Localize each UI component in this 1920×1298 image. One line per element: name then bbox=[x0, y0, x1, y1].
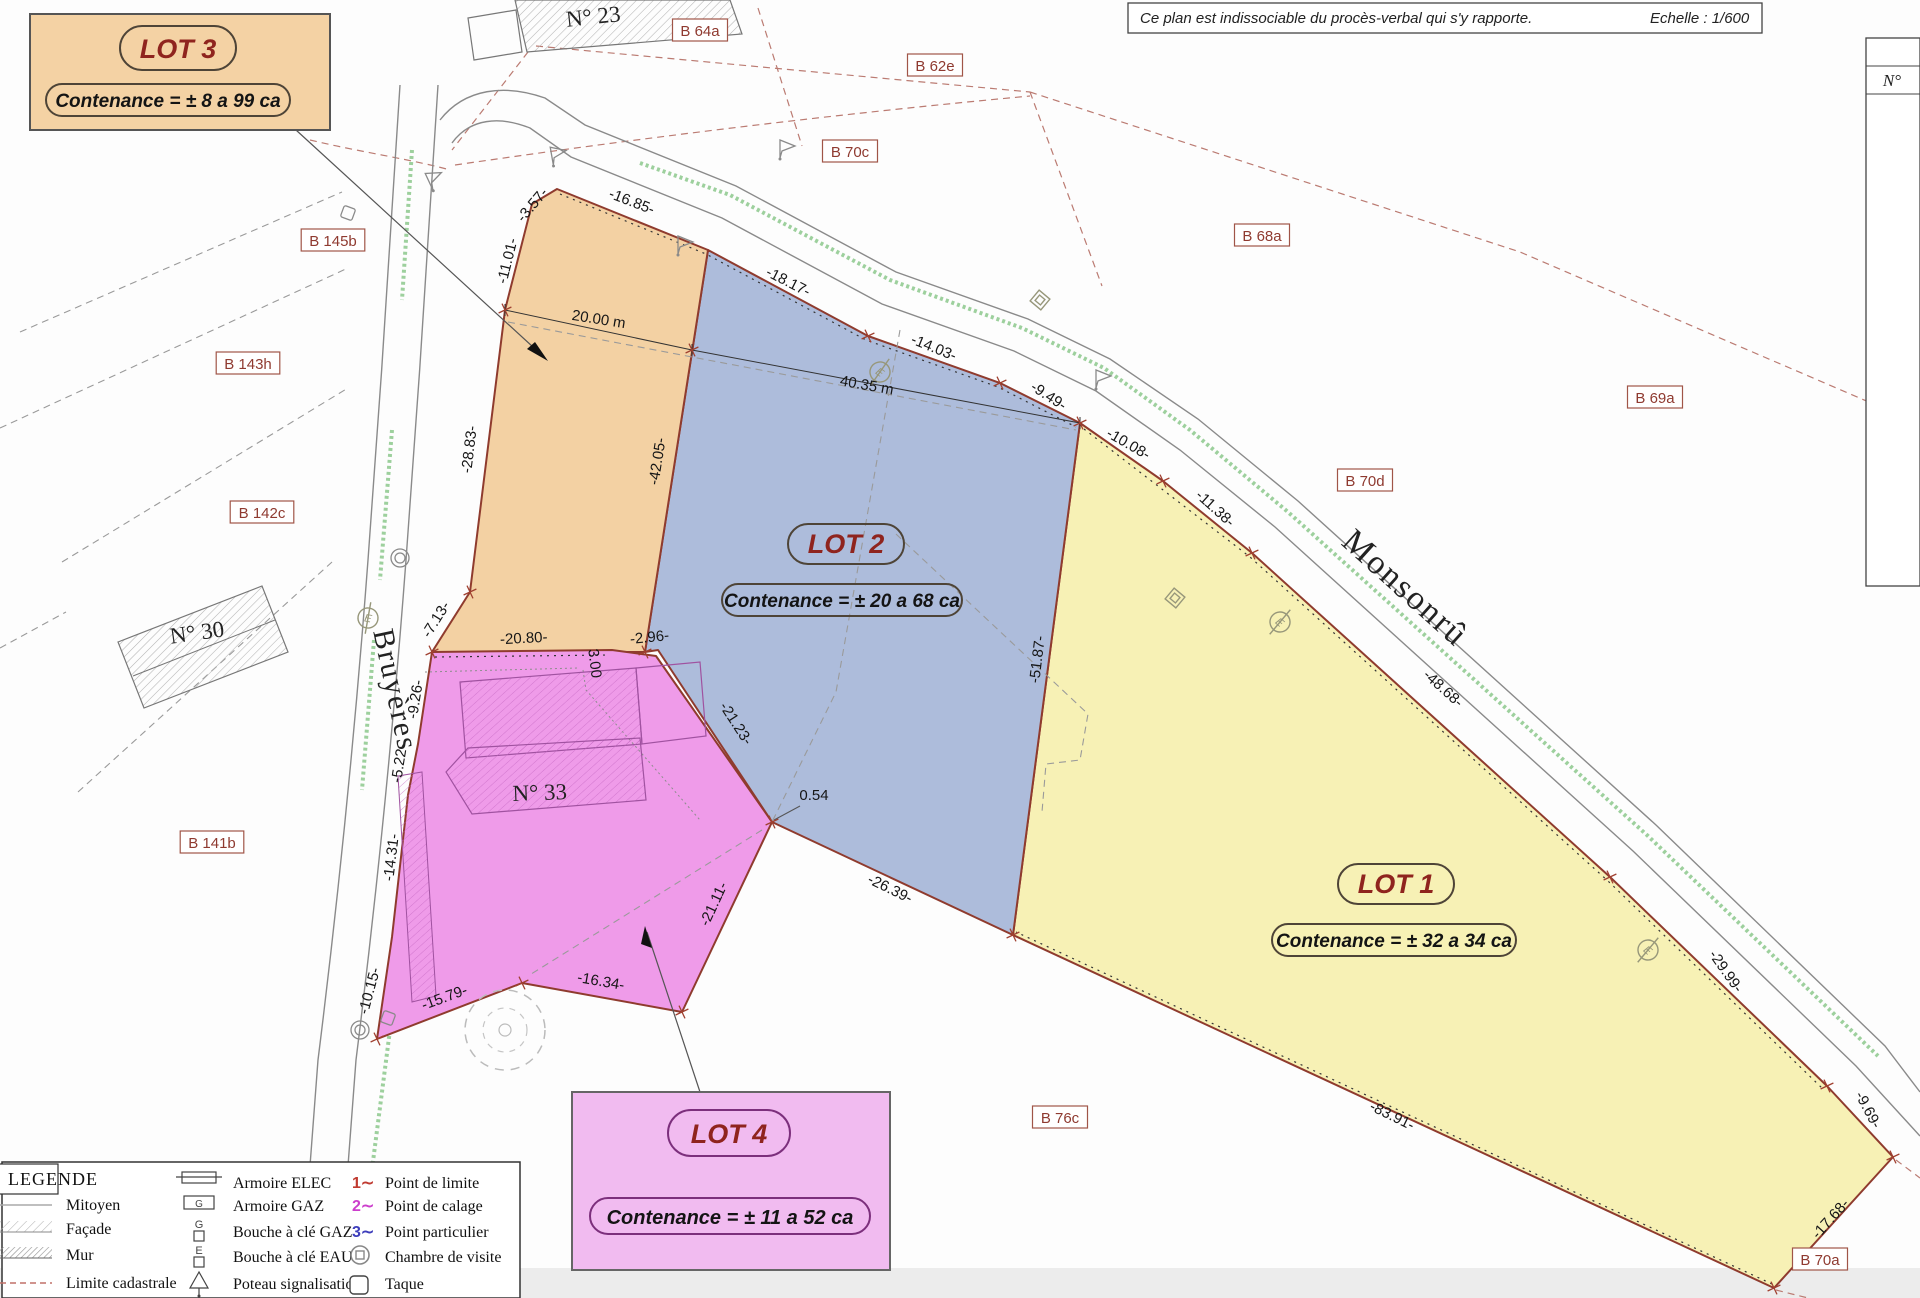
svg-text:B 64a: B 64a bbox=[680, 23, 720, 40]
lot4-title: LOT 4 bbox=[691, 1119, 768, 1149]
parcel-label: B 70a bbox=[1793, 1248, 1848, 1270]
legend: LEGENDE Mitoyen Façade Mur Limite cadast… bbox=[0, 1162, 520, 1298]
parcel-label: B 64a bbox=[673, 19, 728, 41]
parcel-label: B 68a bbox=[1235, 224, 1290, 246]
table-header-n: N° bbox=[1882, 71, 1901, 90]
legend-mur: Mur bbox=[66, 1247, 94, 1264]
parcel-label: B 69a bbox=[1628, 386, 1683, 408]
parcel-label: B 70c bbox=[823, 140, 878, 162]
legend-point-particulier: Point particulier bbox=[385, 1224, 489, 1241]
legend-title: LEGENDE bbox=[8, 1169, 98, 1189]
legend-taque-icon bbox=[350, 1276, 368, 1294]
legend-taque: Taque bbox=[385, 1276, 424, 1293]
legend-poteau: Poteau signalisation bbox=[233, 1276, 361, 1293]
legend-chambre: Chambre de visite bbox=[385, 1249, 501, 1266]
svg-text:B 70a: B 70a bbox=[1800, 1252, 1840, 1269]
armoire-elec-icon bbox=[176, 1172, 222, 1183]
legend-armoire-elec: Armoire ELEC bbox=[233, 1175, 331, 1192]
parcel-label: B 141b bbox=[180, 831, 244, 853]
points-table: N° bbox=[1866, 38, 1920, 586]
measurement-label: 0.54 bbox=[799, 787, 828, 804]
armoire-gaz-icon: G bbox=[184, 1196, 214, 1210]
plan-note: Ce plan est indissociable du procès-verb… bbox=[1140, 10, 1532, 27]
lot1-title: LOT 1 bbox=[1358, 869, 1435, 899]
building-number-label: N° 33 bbox=[512, 779, 567, 806]
svg-text:B 145b: B 145b bbox=[309, 233, 357, 250]
parcel-label: B 143h bbox=[216, 352, 280, 374]
legend-facade: Façade bbox=[66, 1221, 111, 1238]
legend-bouche-gaz: Bouche à clé GAZ bbox=[233, 1224, 353, 1241]
parcel-label: B 142c bbox=[230, 501, 294, 523]
legend-armoire-gaz: Armoire GAZ bbox=[233, 1198, 324, 1215]
legend-bouche-eau: Bouche à clé EAU bbox=[233, 1249, 353, 1266]
parcel-label: B 76c bbox=[1033, 1106, 1088, 1128]
svg-text:G: G bbox=[195, 1199, 203, 1210]
measurement-label: -20.80- bbox=[500, 629, 548, 648]
bouche-eau-icon: E bbox=[194, 1245, 204, 1267]
lot4-contenance: Contenance = ± 11 a 52 ca bbox=[607, 1207, 854, 1229]
legend-point-limite: Point de limite bbox=[385, 1175, 479, 1192]
parcel-label: B 145b bbox=[301, 229, 365, 251]
svg-text:B 70c: B 70c bbox=[831, 144, 870, 161]
lot4-info-box: LOT 4 Contenance = ± 11 a 52 ca bbox=[572, 1092, 890, 1270]
lot3-title: LOT 3 bbox=[140, 34, 217, 64]
svg-text:B 76c: B 76c bbox=[1041, 1110, 1080, 1127]
facade-hatch-icon bbox=[0, 1221, 52, 1232]
measurement-label: 3.00 bbox=[584, 648, 604, 679]
svg-text:B 69a: B 69a bbox=[1635, 390, 1675, 407]
legend-point1-num: 1∼ bbox=[352, 1175, 374, 1192]
chambre-visite-icon bbox=[351, 1246, 369, 1264]
svg-text:B 142c: B 142c bbox=[239, 505, 286, 522]
legend-point3-num: 3∼ bbox=[352, 1224, 374, 1241]
parcel-label: B 62e bbox=[908, 54, 963, 76]
svg-text:E: E bbox=[195, 1245, 202, 1257]
mur-hatch-icon bbox=[0, 1247, 52, 1258]
legend-point-calage: Point de calage bbox=[385, 1198, 483, 1215]
svg-text:B 68a: B 68a bbox=[1242, 228, 1282, 245]
bouche-gaz-icon: G bbox=[194, 1219, 204, 1241]
svg-text:B 70d: B 70d bbox=[1345, 473, 1384, 490]
lot2-contenance: Contenance = ± 20 a 68 ca bbox=[724, 591, 960, 612]
legend-mitoyen: Mitoyen bbox=[66, 1197, 120, 1214]
svg-text:B 141b: B 141b bbox=[188, 835, 236, 852]
lot3-contenance: Contenance = ± 8 a 99 ca bbox=[55, 91, 281, 112]
legend-limite: Limite cadastrale bbox=[66, 1275, 177, 1292]
lot3-info-box: LOT 3 Contenance = ± 8 a 99 ca bbox=[30, 14, 330, 130]
note-box: Ce plan est indissociable du procès-verb… bbox=[1128, 3, 1762, 33]
lot2-title: LOT 2 bbox=[808, 529, 885, 559]
svg-text:G: G bbox=[195, 1219, 204, 1231]
svg-text:B 62e: B 62e bbox=[915, 58, 954, 75]
svg-text:B 143h: B 143h bbox=[224, 356, 272, 373]
cadastral-plan: E bbox=[0, 0, 1920, 1298]
lot1-contenance: Contenance = ± 32 a 34 ca bbox=[1276, 931, 1512, 952]
plan-scale: Echelle : 1/600 bbox=[1650, 10, 1750, 27]
legend-point2-num: 2∼ bbox=[352, 1198, 374, 1215]
parcel-label: B 70d bbox=[1338, 469, 1393, 491]
